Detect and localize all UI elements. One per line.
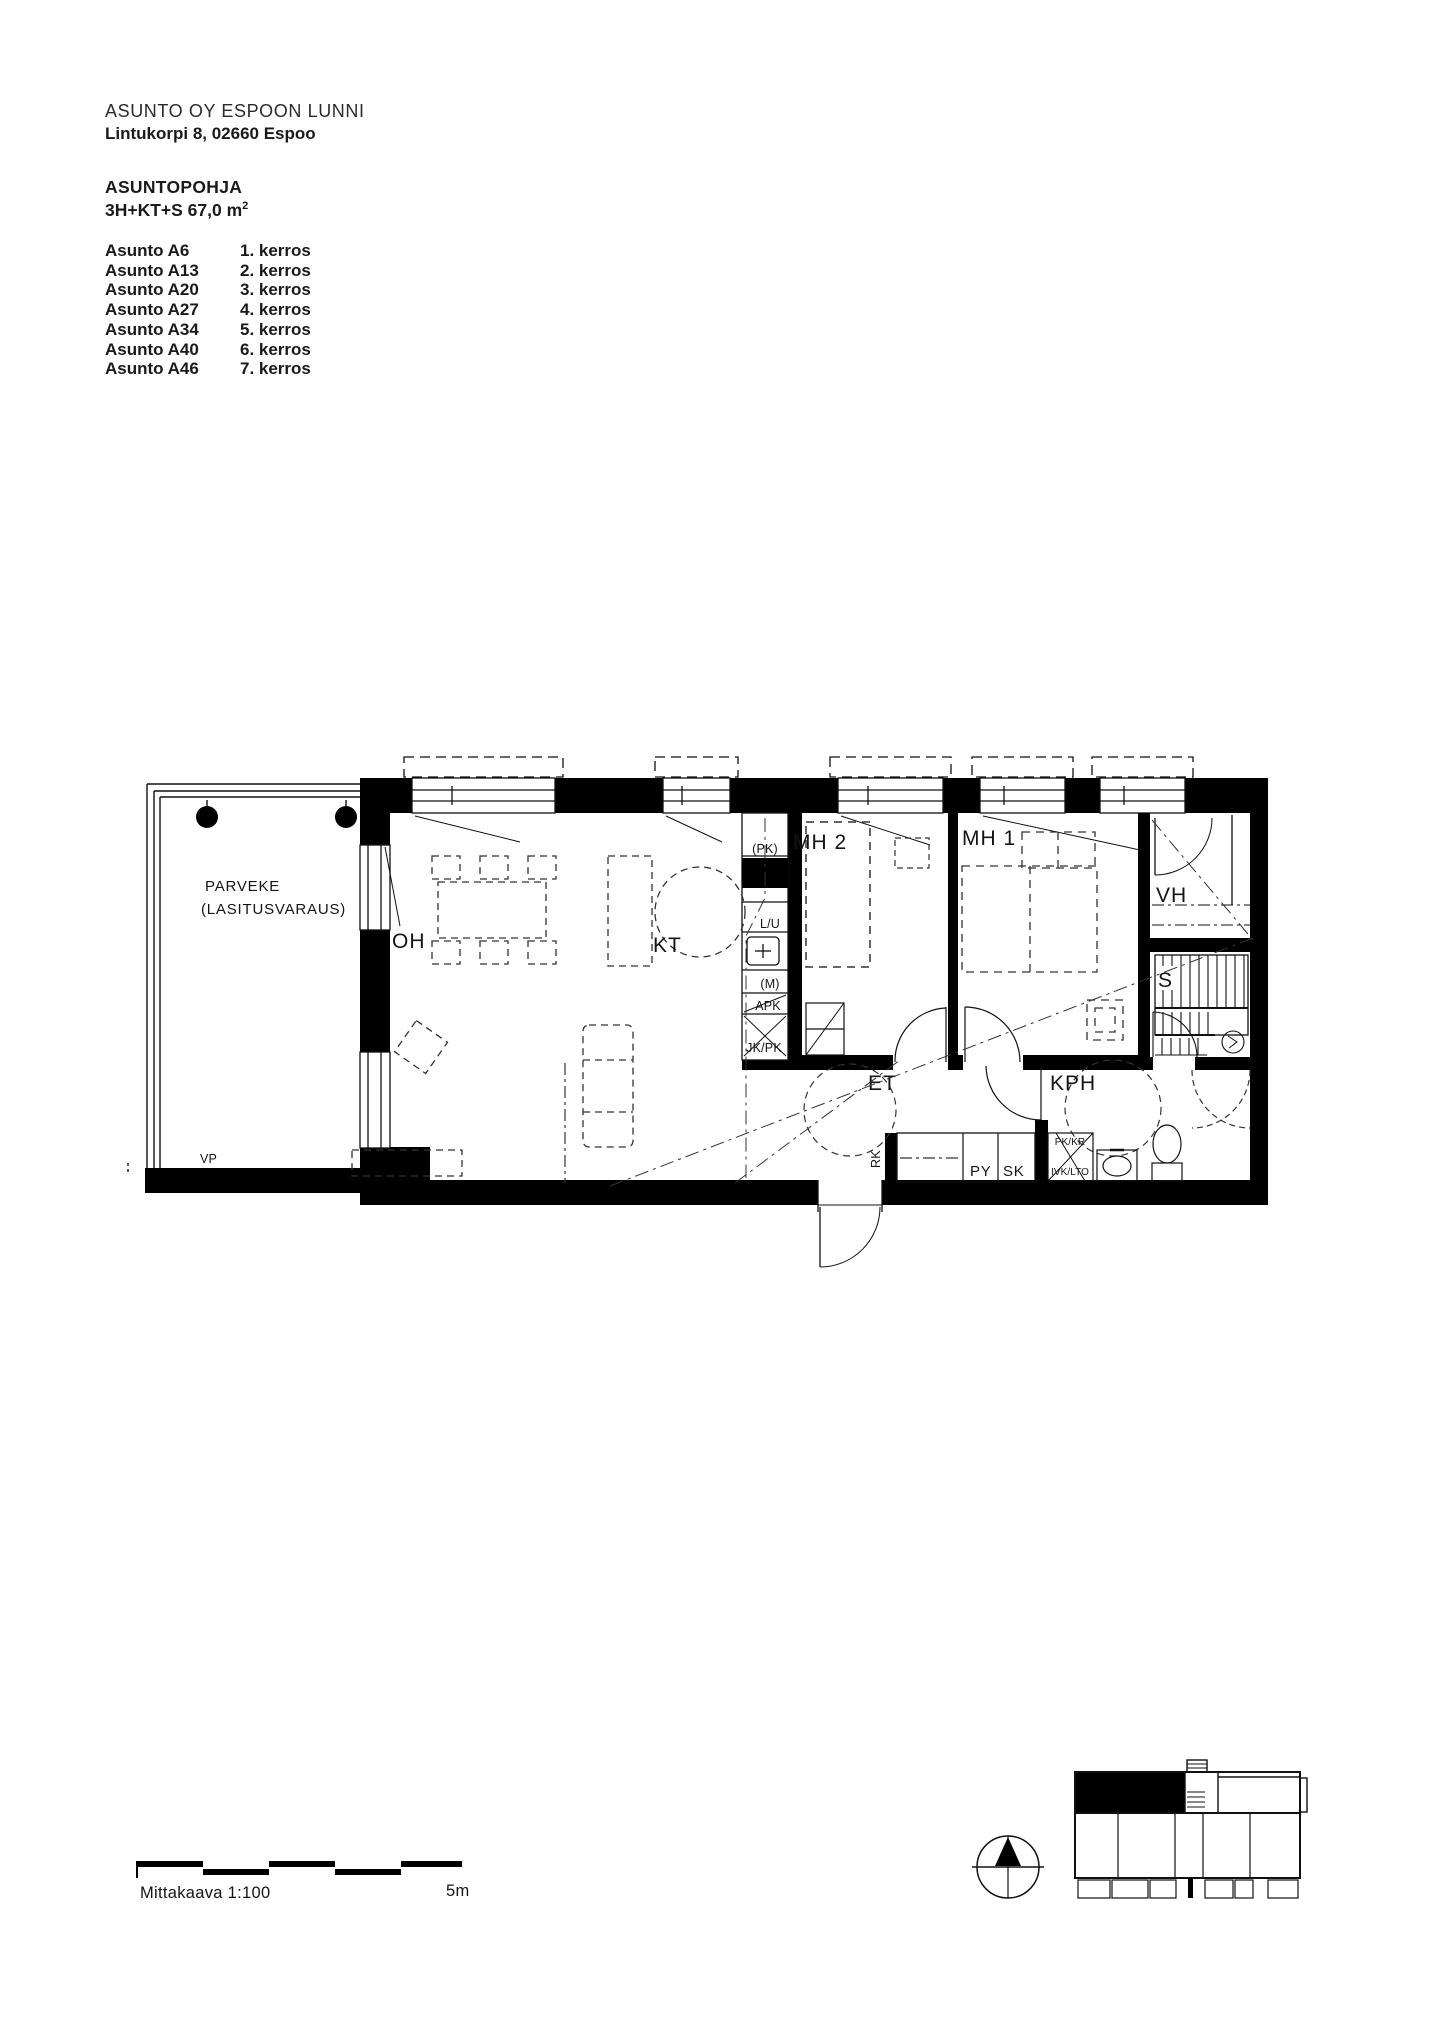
ivklto-label: IVK/LTO: [1051, 1167, 1089, 1178]
balcony-label-2: (LASITUSVARAUS): [201, 901, 346, 918]
py-label: PY: [970, 1163, 992, 1180]
entry-door: [818, 1180, 882, 1267]
pkkr-label: PK/KR: [1055, 1137, 1086, 1148]
toilet: [1153, 1125, 1181, 1163]
rk-label: RK: [869, 1150, 883, 1168]
oh-label: OH: [392, 930, 426, 953]
vh-label: VH: [1156, 884, 1187, 907]
balcony-window: [360, 1052, 390, 1148]
site-key-plan: [1075, 1760, 1307, 1898]
balcony-label: PARVEKE: [205, 878, 280, 895]
hallway: [565, 1063, 1035, 1183]
kph-label: KPH: [1050, 1072, 1096, 1095]
bedroom1-furniture: [962, 832, 1123, 1040]
bedroom2-furniture: [806, 822, 929, 1055]
balcony-column: [335, 806, 357, 828]
balcony-column: [196, 806, 218, 828]
balcony: [128, 784, 360, 1193]
lu-label: L/U: [760, 917, 780, 931]
vp-label: VP: [200, 1152, 217, 1166]
living-room-furniture: [352, 856, 745, 1176]
jkpk-label: JK/PK: [746, 1041, 782, 1055]
highlighted-unit: [1075, 1772, 1185, 1813]
kt-label: KT: [653, 934, 682, 957]
mh1-label: MH 1: [962, 827, 1016, 850]
balcony-door: [360, 845, 400, 930]
scale-bar: [136, 1861, 462, 1878]
floor-plan-page: ASUNTO OY ESPOON LUNNI Lintukorpi 8, 026…: [0, 0, 1440, 2036]
et-label: ET: [868, 1072, 897, 1095]
scale-end-label: 5m: [446, 1882, 470, 1900]
closet-room: [1152, 815, 1250, 925]
north-arrow-icon: [972, 1836, 1044, 1898]
sk-label: SK: [1003, 1163, 1025, 1180]
mh2-label: MH 2: [793, 831, 847, 854]
interior-doors: [895, 1007, 1041, 1120]
apk-label: APK: [755, 999, 781, 1013]
m-label: (M): [760, 977, 779, 991]
sauna-label: S: [1158, 969, 1173, 992]
floor-plan-drawing: PARVEKE (LASITUSVARAUS) VP: [0, 0, 1440, 2036]
scale-label: Mittakaava 1:100: [140, 1884, 270, 1902]
